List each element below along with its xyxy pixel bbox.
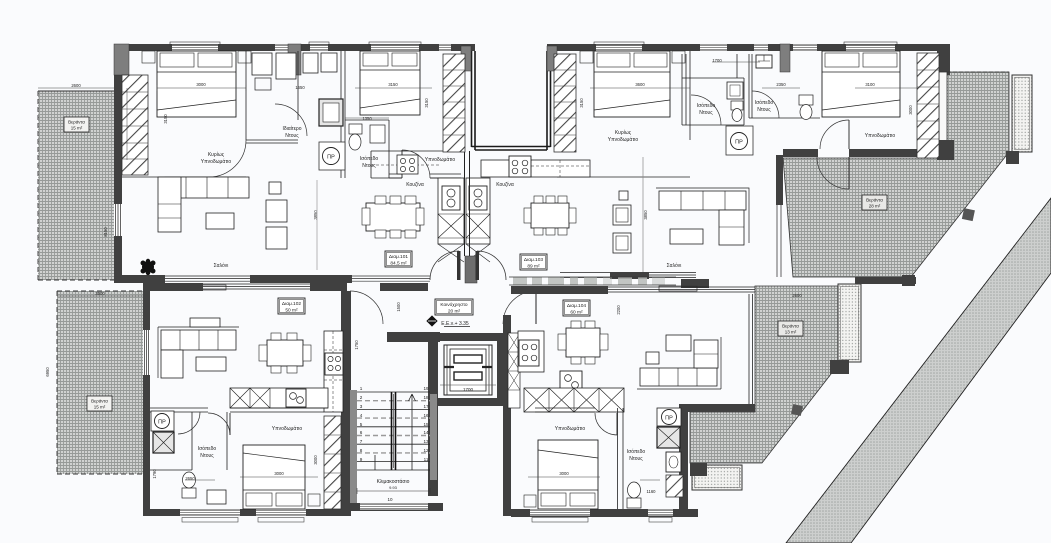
svg-text:1700: 1700 bbox=[463, 387, 474, 392]
svg-text:12: 12 bbox=[423, 448, 429, 453]
svg-text:Ισόπεδο: Ισόπεδο bbox=[198, 445, 217, 452]
svg-text:1790: 1790 bbox=[152, 469, 157, 479]
svg-text:19: 19 bbox=[423, 386, 429, 391]
svg-text:3850: 3850 bbox=[643, 210, 648, 220]
svg-text:2600: 2600 bbox=[792, 293, 802, 298]
svg-text:1750: 1750 bbox=[354, 340, 359, 350]
svg-text:Ε.Ε.ν.+ 3.35: Ε.Ε.ν.+ 3.35 bbox=[441, 321, 469, 327]
svg-text:Ντους: Ντους bbox=[699, 110, 713, 116]
svg-text:Διαμ.101: Διαμ.101 bbox=[389, 254, 408, 260]
svg-text:1: 1 bbox=[360, 386, 363, 391]
svg-text:Ντους: Ντους bbox=[285, 133, 299, 139]
svg-text:Ισόπεδο: Ισόπεδο bbox=[697, 102, 716, 109]
svg-text:Κουζίνα: Κουζίνα bbox=[406, 182, 424, 188]
svg-text:Βεράντα: Βεράντα bbox=[782, 323, 799, 329]
svg-text:9: 9 bbox=[360, 457, 363, 462]
svg-text:Ντους: Ντους bbox=[629, 456, 643, 462]
svg-text:1160: 1160 bbox=[646, 489, 656, 494]
svg-text:Κουζίνα: Κουζίνα bbox=[496, 182, 514, 188]
svg-text:16: 16 bbox=[423, 413, 429, 418]
svg-text:4: 4 bbox=[360, 413, 363, 418]
svg-text:7: 7 bbox=[360, 439, 363, 444]
svg-text:60 m²: 60 m² bbox=[570, 310, 583, 316]
svg-text:2: 2 bbox=[360, 395, 363, 400]
svg-text:Κυρίως: Κυρίως bbox=[208, 152, 225, 158]
svg-text:Βεράντα: Βεράντα bbox=[91, 398, 108, 404]
svg-text:8150: 8150 bbox=[103, 227, 108, 237]
svg-text:2650: 2650 bbox=[185, 476, 195, 481]
svg-text:17: 17 bbox=[423, 404, 429, 409]
svg-text:2350: 2350 bbox=[776, 82, 786, 87]
svg-text:9.93: 9.93 bbox=[389, 485, 398, 490]
svg-text:3000: 3000 bbox=[559, 471, 569, 476]
svg-text:3150: 3150 bbox=[163, 114, 168, 124]
svg-text:Διαμ.104: Διαμ.104 bbox=[567, 303, 586, 309]
svg-text:3150: 3150 bbox=[579, 98, 584, 108]
svg-text:Διαμ.102: Διαμ.102 bbox=[282, 301, 301, 307]
svg-text:Ντους: Ντους bbox=[200, 453, 214, 459]
svg-text:5: 5 bbox=[360, 422, 363, 427]
svg-text:Κοινόχρηστο: Κοινόχρηστο bbox=[440, 301, 468, 308]
svg-text:2200: 2200 bbox=[616, 305, 621, 315]
svg-text:6: 6 bbox=[360, 430, 363, 435]
svg-text:Κυρίως: Κυρίως bbox=[615, 130, 632, 136]
svg-text:8: 8 bbox=[360, 448, 363, 453]
svg-text:ΠΡ: ΠΡ bbox=[665, 416, 673, 422]
svg-text:1350: 1350 bbox=[362, 116, 372, 121]
svg-text:Ντους: Ντους bbox=[362, 163, 376, 169]
svg-text:10: 10 bbox=[387, 497, 393, 502]
svg-text:1650: 1650 bbox=[295, 85, 305, 90]
svg-text:Υπνοδωμάτιο: Υπνοδωμάτιο bbox=[425, 156, 456, 163]
svg-text:ΠΡ: ΠΡ bbox=[327, 155, 335, 161]
svg-text:3000: 3000 bbox=[908, 105, 913, 115]
svg-text:1500: 1500 bbox=[396, 302, 401, 312]
svg-text:Υπνοδωμάτιο: Υπνοδωμάτιο bbox=[555, 425, 586, 432]
svg-text:15 m²: 15 m² bbox=[71, 126, 83, 131]
svg-text:Ισόπεδο: Ισόπεδο bbox=[627, 448, 646, 455]
svg-text:18: 18 bbox=[423, 395, 429, 400]
svg-text:Ντους: Ντους bbox=[757, 107, 771, 113]
svg-text:13: 13 bbox=[423, 439, 429, 444]
svg-text:Βεράντα: Βεράντα bbox=[866, 197, 883, 203]
svg-text:3100: 3100 bbox=[865, 82, 875, 87]
svg-text:11: 11 bbox=[424, 457, 429, 462]
svg-text:14: 14 bbox=[423, 430, 429, 435]
svg-text:89 m²: 89 m² bbox=[527, 264, 540, 270]
svg-text:3600: 3600 bbox=[635, 82, 645, 87]
svg-text:3: 3 bbox=[360, 404, 363, 409]
svg-text:3500: 3500 bbox=[95, 291, 105, 296]
svg-text:20 m²: 20 m² bbox=[448, 309, 461, 315]
svg-text:15: 15 bbox=[423, 422, 429, 427]
svg-text:3000: 3000 bbox=[274, 471, 284, 476]
svg-text:3000: 3000 bbox=[313, 455, 318, 465]
svg-text:13 m²: 13 m² bbox=[785, 330, 797, 335]
svg-text:ΠΡ: ΠΡ bbox=[735, 140, 743, 146]
svg-text:Ισόπεδο: Ισόπεδο bbox=[755, 99, 774, 106]
svg-text:Σαλόνι: Σαλόνι bbox=[667, 262, 682, 269]
svg-text:3000: 3000 bbox=[196, 82, 206, 87]
svg-text:Σαλόνι: Σαλόνι bbox=[214, 262, 229, 269]
svg-text:1700: 1700 bbox=[712, 58, 722, 63]
svg-text:Βεράντα: Βεράντα bbox=[68, 119, 85, 125]
svg-text:2600: 2600 bbox=[71, 83, 81, 88]
svg-text:Ιδιαίτερο: Ιδιαίτερο bbox=[282, 126, 301, 132]
svg-text:Υπνοδωμάτιο: Υπνοδωμάτιο bbox=[201, 158, 232, 165]
svg-text:Υπνοδωμάτιο: Υπνοδωμάτιο bbox=[608, 136, 639, 143]
svg-text:Υπνοδωμάτιο: Υπνοδωμάτιο bbox=[272, 425, 303, 432]
svg-text:84.5 m²: 84.5 m² bbox=[390, 261, 407, 267]
svg-text:ΠΡ: ΠΡ bbox=[158, 420, 166, 426]
svg-text:6950: 6950 bbox=[45, 367, 50, 377]
svg-text:3150: 3150 bbox=[388, 82, 398, 87]
svg-text:3150: 3150 bbox=[424, 98, 429, 108]
svg-text:28 m²: 28 m² bbox=[869, 204, 881, 209]
svg-text:15 m²: 15 m² bbox=[94, 405, 106, 410]
svg-text:50 m²: 50 m² bbox=[285, 308, 298, 314]
svg-text:Κλιμακοστάσιο: Κλιμακοστάσιο bbox=[377, 478, 410, 485]
svg-text:Διαμ.103: Διαμ.103 bbox=[524, 257, 543, 263]
svg-text:Υπνοδωμάτιο: Υπνοδωμάτιο bbox=[865, 132, 896, 139]
svg-text:Ισόπεδο: Ισόπεδο bbox=[360, 155, 379, 162]
